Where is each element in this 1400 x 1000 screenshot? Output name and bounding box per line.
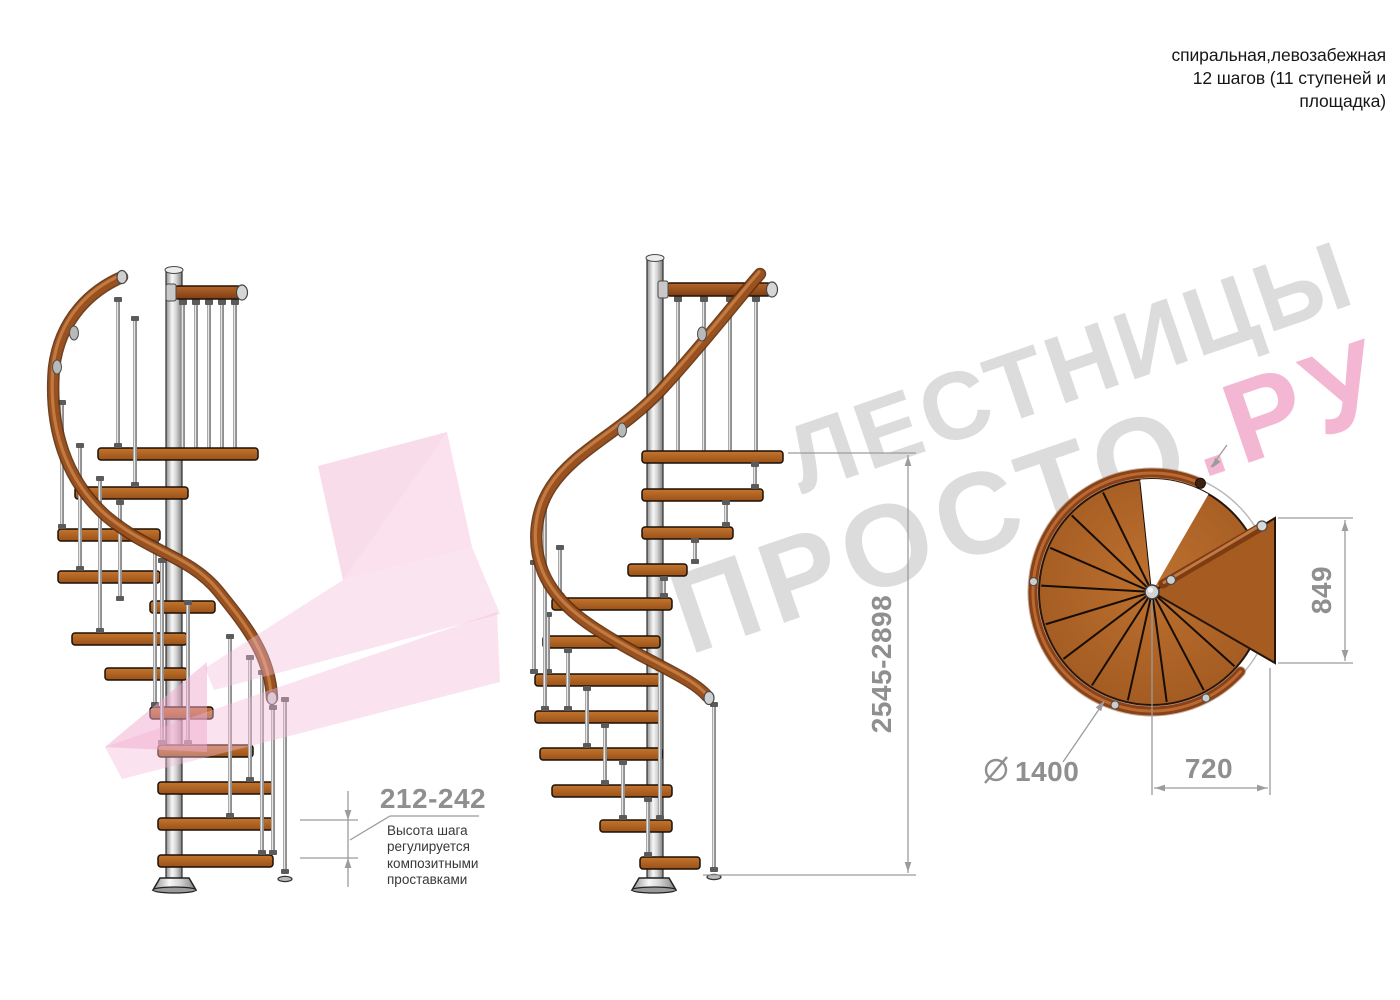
baluster-joint: [644, 852, 652, 857]
technical-drawing: 212-242 2545-2898 849 720 1400: [0, 0, 1400, 1000]
baluster-joint: [58, 524, 66, 529]
baluster-joint: [246, 777, 254, 782]
balustrade-rail: [172, 286, 244, 299]
dimension-arrow: [1342, 650, 1349, 660]
dim-landing-width: 720: [1185, 753, 1233, 784]
baluster-joint: [218, 299, 226, 305]
baluster-cap: [1202, 694, 1210, 702]
handrail-collar: [53, 360, 62, 374]
baluster-joint: [76, 443, 84, 448]
baluster-joint: [583, 686, 591, 691]
dim-landing-depth: 849: [1306, 566, 1337, 614]
rail-joint: [1167, 576, 1176, 585]
tread: [600, 820, 672, 832]
pole-cap: [165, 267, 183, 274]
baluster-joint: [601, 723, 609, 728]
baluster-joint: [691, 538, 699, 543]
baluster-joint: [76, 566, 84, 571]
baluster-joint: [619, 815, 627, 820]
dim-diameter: 1400: [1015, 756, 1079, 787]
pole-cap: [646, 255, 664, 262]
handrail-end-cap: [704, 692, 714, 705]
baluster-joint: [556, 545, 564, 550]
tread: [628, 564, 687, 576]
tread: [58, 571, 160, 583]
baluster-joint: [691, 559, 699, 564]
handrail-end-cap: [117, 271, 127, 284]
baluster-joint: [752, 296, 760, 302]
dimension-arrow: [905, 456, 912, 466]
baluster-joint: [530, 669, 538, 674]
baluster-joint: [619, 760, 627, 765]
baluster-joint: [96, 628, 104, 633]
handrail-end-cap: [1195, 478, 1205, 488]
dimension-line: [1063, 702, 1104, 762]
baluster-joint: [751, 484, 759, 489]
type-annotation: спиральная,левозабежная 12 шагов (11 сту…: [1171, 44, 1386, 113]
tread: [158, 818, 273, 830]
step-height-note: Высота шага регулируется композитными пр…: [387, 823, 497, 889]
rail-bracket: [658, 281, 668, 298]
diameter-label: 1400: [985, 756, 1079, 787]
tread: [105, 668, 187, 680]
baluster-joint: [184, 600, 192, 605]
tread: [98, 448, 258, 460]
tread: [150, 601, 215, 613]
baluster-joint: [722, 500, 730, 505]
diameter-icon: [985, 757, 1007, 783]
elevation-view-1: [52, 267, 292, 894]
baluster-joint: [644, 797, 652, 802]
handrail-collar: [70, 326, 79, 340]
baluster-joint: [231, 299, 239, 305]
rail-bracket: [166, 284, 176, 301]
base-flange-foot: [153, 887, 196, 893]
baluster-joint: [601, 780, 609, 785]
dimension-arrow: [1342, 521, 1349, 531]
baluster-joint: [281, 869, 289, 874]
tread: [642, 527, 733, 539]
tread: [158, 782, 273, 794]
baluster-cap: [1111, 701, 1119, 709]
baluster-joint: [660, 576, 668, 581]
baluster-joint: [710, 867, 718, 872]
baluster-joint: [96, 476, 104, 481]
handrail-collar: [698, 327, 707, 341]
handrail-collar: [618, 423, 627, 437]
baluster-joint: [226, 634, 234, 639]
baluster-joint: [656, 815, 664, 820]
dimension-arrow: [345, 810, 352, 820]
tread: [642, 489, 763, 501]
tread: [540, 748, 662, 760]
baluster-joint: [269, 850, 277, 855]
baluster-joint: [179, 299, 187, 305]
dim-total-height: 2545-2898: [866, 595, 897, 733]
baluster-foot: [278, 876, 292, 881]
baluster-joint: [116, 500, 124, 505]
dimension-arrow: [1257, 785, 1267, 792]
baluster-joint: [660, 593, 668, 598]
base-flange-foot: [632, 887, 676, 893]
rail-end-cap: [237, 285, 248, 300]
baluster-joint: [564, 648, 572, 653]
tread: [72, 633, 187, 645]
baluster-joint: [131, 482, 139, 487]
dimension-arrow: [345, 858, 352, 868]
tread: [158, 855, 273, 867]
baluster-joint: [258, 850, 266, 855]
baluster-joint: [226, 813, 234, 818]
baluster-joint: [722, 522, 730, 527]
baluster-joint: [751, 462, 759, 467]
baluster-joint: [205, 299, 213, 305]
tread: [552, 785, 672, 797]
baluster-joint: [674, 296, 682, 302]
baluster-joint: [114, 443, 122, 448]
tread: [640, 857, 700, 869]
dimension-arrow: [905, 862, 912, 872]
baluster-cap: [1030, 578, 1038, 586]
baluster-joint: [192, 299, 200, 305]
baluster-joint: [583, 743, 591, 748]
tread: [535, 711, 660, 723]
baluster-joint: [700, 296, 708, 302]
drawing-canvas: ЛЕСТНИЦЫ ПРОСТО.РУ: [0, 0, 1400, 1000]
tread: [642, 451, 783, 463]
rail-end-cap: [1257, 521, 1267, 531]
dim-step-height: 212-242: [380, 783, 486, 814]
baluster-joint: [116, 596, 124, 601]
dimension-arrow: [1155, 785, 1165, 792]
baluster-joint: [541, 706, 549, 711]
baluster-joint: [131, 316, 139, 321]
baluster-joint: [114, 297, 122, 302]
center-pole-highlight: [1148, 587, 1153, 592]
elevation-view-2: [530, 255, 783, 894]
rail-end-cap: [767, 282, 778, 297]
tread: [535, 674, 660, 686]
baluster-joint: [564, 706, 572, 711]
